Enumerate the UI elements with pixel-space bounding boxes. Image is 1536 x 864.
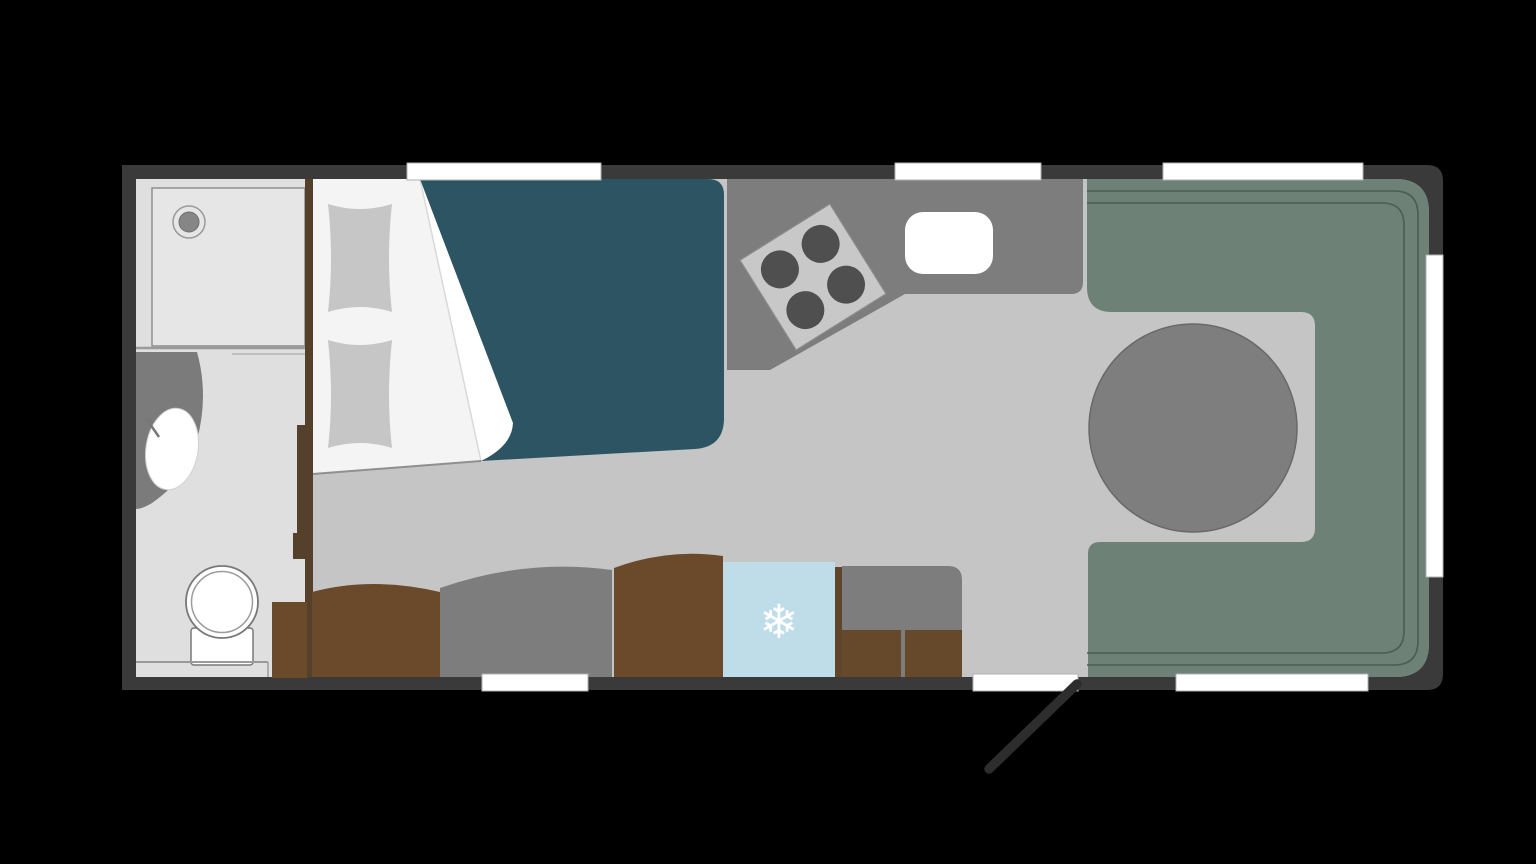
shower-tray [152,188,305,346]
canvas: ❄ [0,0,1536,864]
seat-brown-1 [312,584,440,677]
window-top-3 [1163,163,1363,180]
window-top-1 [407,163,601,180]
toilet-bowl [186,566,258,638]
cabinet-1 [842,630,901,677]
seat-gray [440,567,612,677]
window-bottom-1 [482,674,588,691]
storage-box [272,602,307,678]
door-opening [973,674,1078,691]
dining-table [1089,324,1297,532]
faucet-icon [146,418,153,425]
cabinet-2 [905,630,962,677]
window-top-2 [895,163,1041,180]
pillow-2 [328,340,392,448]
shower-drain-cap [179,212,199,232]
fridge-and-storage: ❄ [723,562,962,677]
partition-step [293,533,305,559]
seat-brown-2 [614,554,723,677]
pillow-1 [328,204,392,312]
window-bottom-2 [1176,674,1368,691]
window-right [1426,255,1443,577]
bathroom-sliding-door [297,425,313,537]
caravan-floorplan: ❄ [0,0,1536,864]
snowflake-icon: ❄ [759,595,798,650]
entry-door-leaf [989,684,1077,769]
bed [313,179,724,474]
fridge-side-panel [835,567,842,677]
rear-lounge [1087,179,1429,677]
kitchen-sink [905,212,993,274]
